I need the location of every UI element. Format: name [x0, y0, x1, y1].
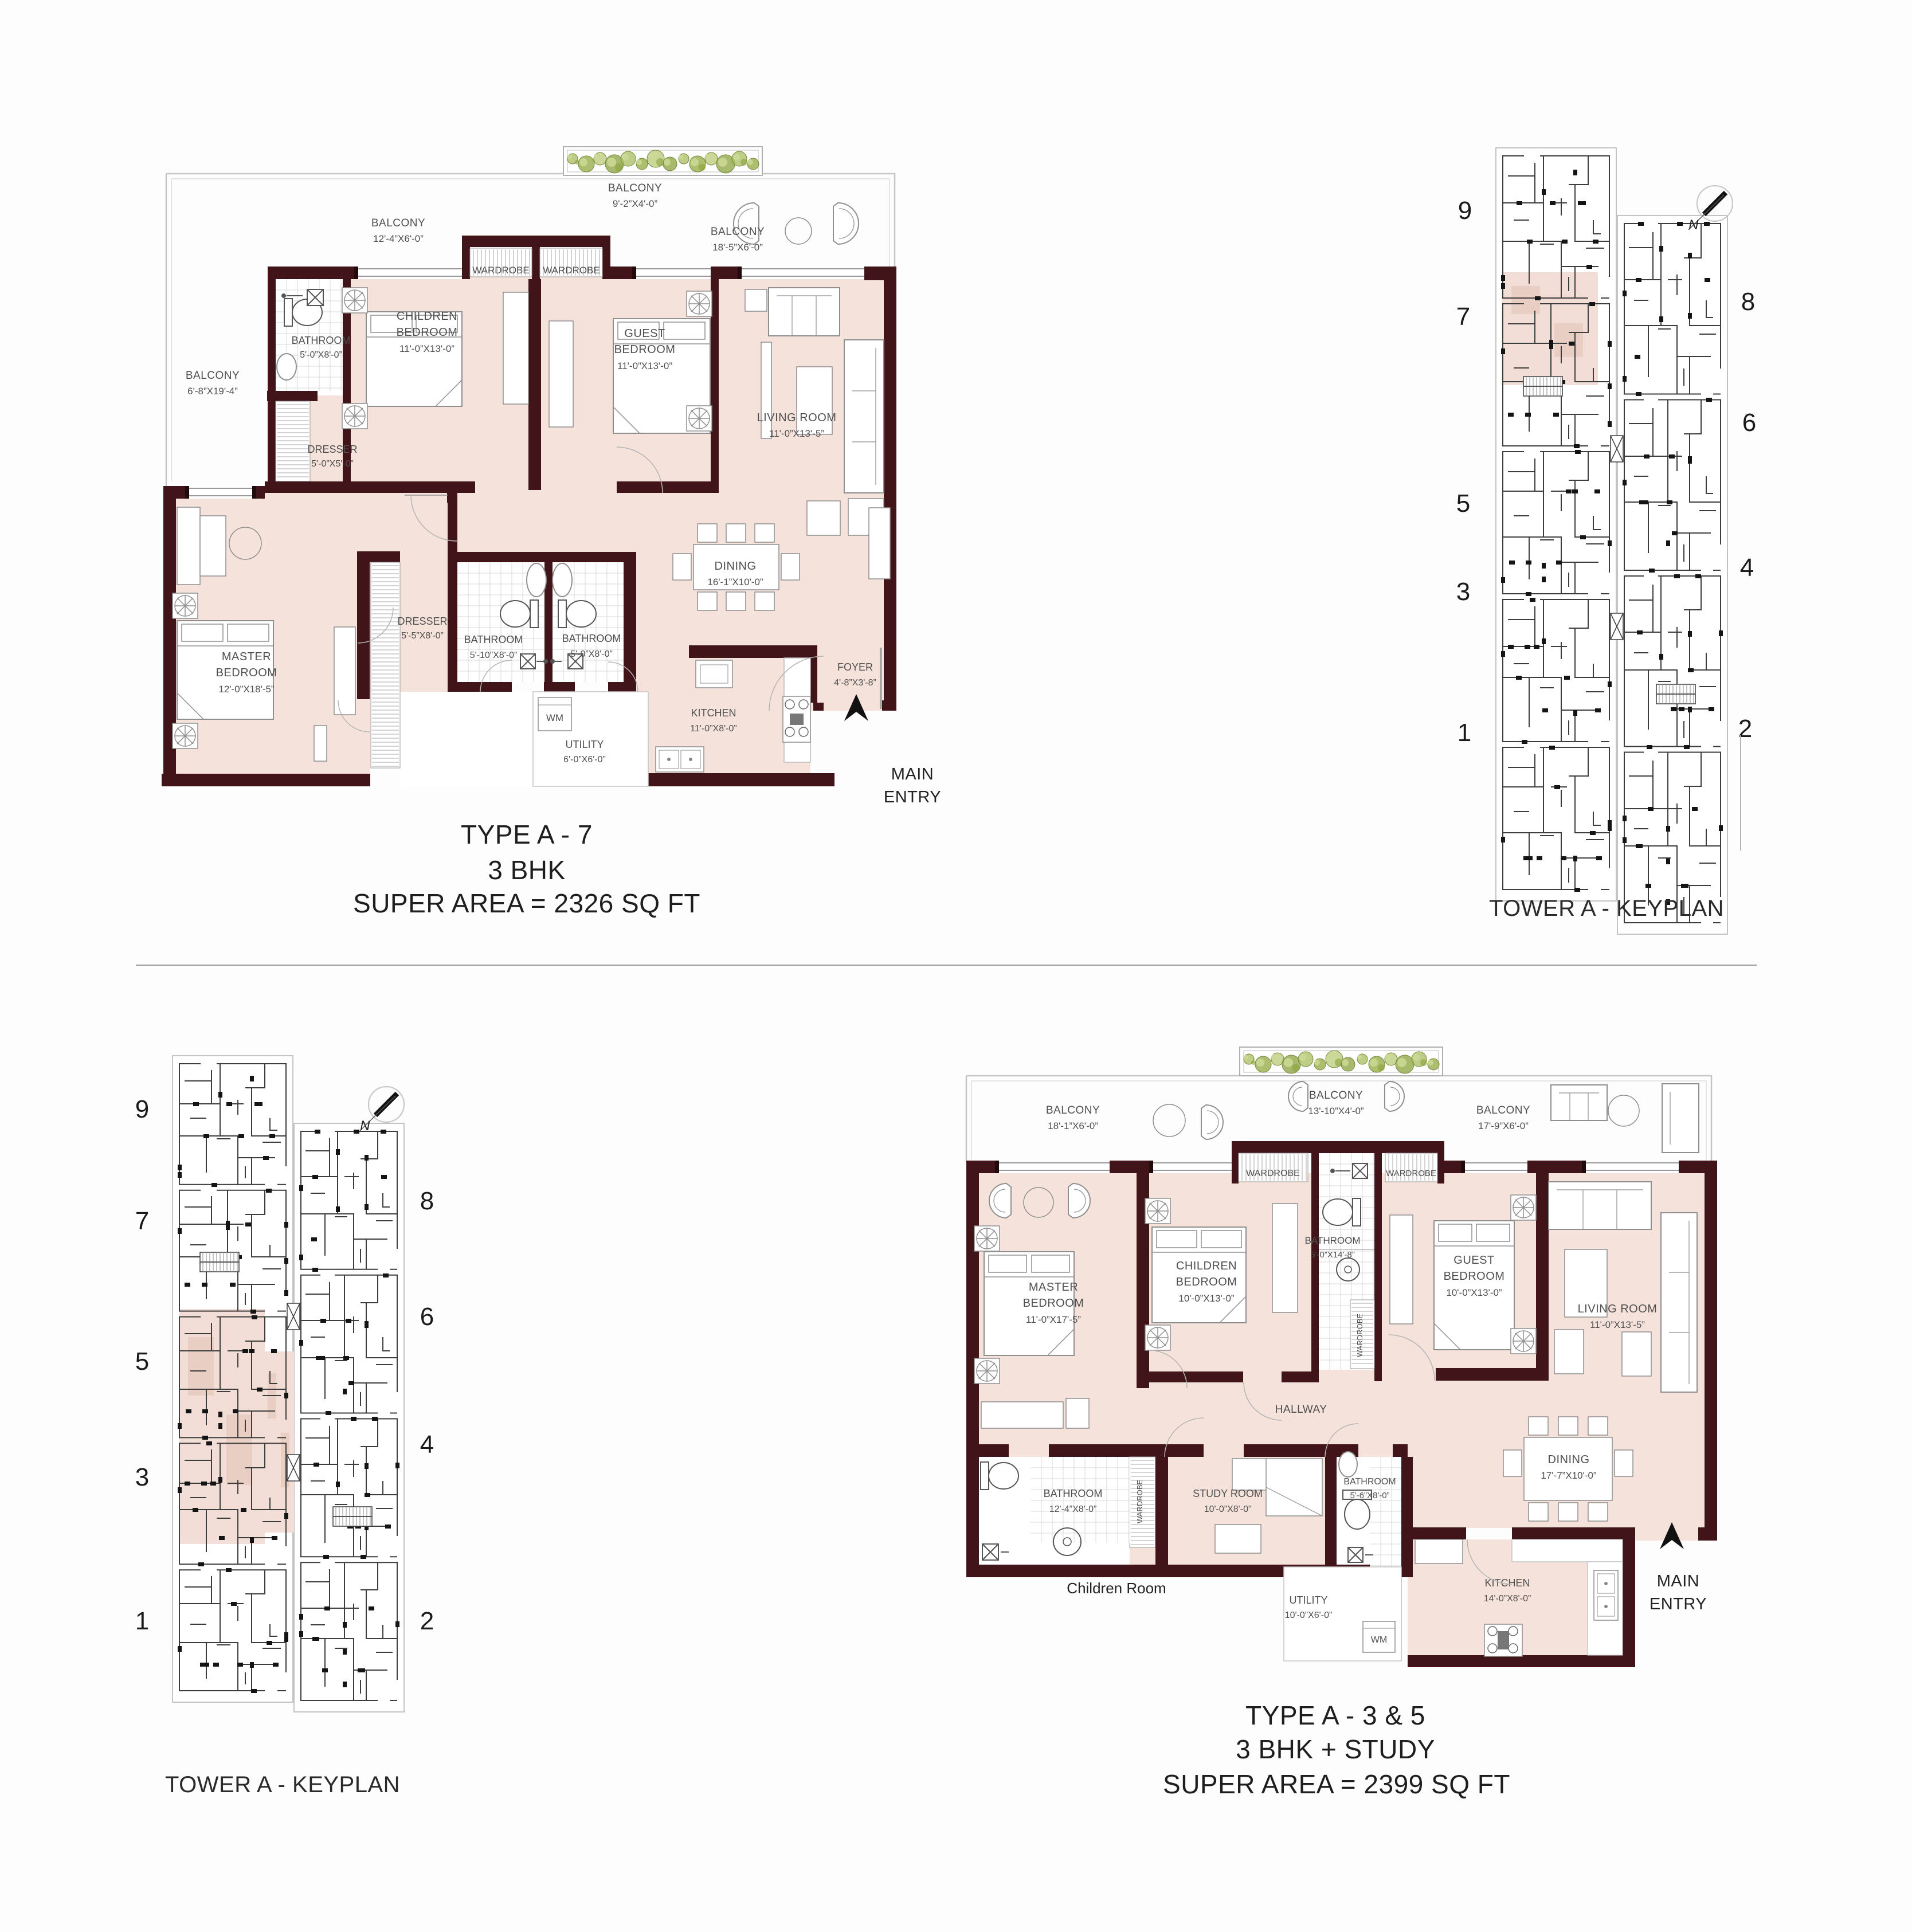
- svg-text:BATHROOM: BATHROOM: [464, 634, 523, 645]
- svg-text:3 BHK: 3 BHK: [488, 855, 565, 885]
- svg-text:5'-0”X5'-0”: 5'-0”X5'-0”: [311, 459, 354, 469]
- svg-text:5: 5: [1456, 489, 1470, 518]
- svg-text:CHILDREN: CHILDREN: [1176, 1260, 1237, 1272]
- svg-text:WARDROBE: WARDROBE: [1355, 1314, 1364, 1357]
- svg-text:1: 1: [135, 1607, 149, 1635]
- svg-text:BALCONY: BALCONY: [371, 217, 425, 229]
- svg-text:SUPER AREA = 2326 SQ FT: SUPER AREA = 2326 SQ FT: [353, 888, 700, 918]
- svg-text:BEDROOM: BEDROOM: [1176, 1276, 1237, 1288]
- svg-text:BATHROOM: BATHROOM: [1343, 1477, 1396, 1487]
- svg-text:BALCONY: BALCONY: [186, 370, 240, 382]
- svg-text:6'-8”X19'-4”: 6'-8”X19'-4”: [187, 386, 238, 397]
- svg-text:GUEST: GUEST: [1453, 1254, 1494, 1267]
- svg-text:CHILDREN: CHILDREN: [397, 310, 457, 323]
- svg-text:DINING: DINING: [1548, 1453, 1590, 1466]
- svg-text:UTILITY: UTILITY: [1289, 1594, 1327, 1606]
- svg-text:BALCONY: BALCONY: [608, 182, 662, 194]
- svg-text:12'-4”X8'-0”: 12'-4”X8'-0”: [1049, 1504, 1097, 1514]
- svg-text:BEDROOM: BEDROOM: [1023, 1297, 1084, 1310]
- svg-text:HALLWAY: HALLWAY: [1275, 1404, 1327, 1416]
- svg-text:STUDY ROOM: STUDY ROOM: [1193, 1488, 1263, 1499]
- svg-text:9'-2”X4'-0”: 9'-2”X4'-0”: [613, 198, 658, 209]
- svg-text:14'-0”X8'-0”: 14'-0”X8'-0”: [1484, 1594, 1531, 1604]
- svg-text:GUEST: GUEST: [624, 327, 665, 340]
- svg-text:BATHROOM: BATHROOM: [1044, 1488, 1103, 1499]
- svg-text:6: 6: [420, 1303, 434, 1331]
- svg-text:7: 7: [135, 1207, 149, 1235]
- svg-text:WM: WM: [546, 712, 563, 723]
- svg-text:1: 1: [1457, 719, 1471, 747]
- svg-text:4: 4: [1740, 554, 1754, 582]
- svg-text:5'-0”X14'-8”: 5'-0”X14'-8”: [1310, 1250, 1354, 1260]
- svg-text:18'-5”X6'-0”: 18'-5”X6'-0”: [712, 242, 763, 253]
- svg-text:ENTRY: ENTRY: [1650, 1595, 1707, 1613]
- svg-text:BALCONY: BALCONY: [711, 226, 765, 238]
- svg-text:17'-9”X6'-0”: 17'-9”X6'-0”: [1478, 1120, 1529, 1131]
- svg-text:5: 5: [135, 1347, 149, 1375]
- svg-text:9: 9: [135, 1095, 149, 1123]
- svg-text:TOWER A - KEYPLAN: TOWER A - KEYPLAN: [165, 1772, 400, 1797]
- svg-text:BEDROOM: BEDROOM: [1444, 1270, 1505, 1283]
- svg-text:8: 8: [1741, 288, 1755, 316]
- svg-text:DRESSER: DRESSER: [307, 444, 357, 455]
- svg-text:WARDROBE: WARDROBE: [1246, 1169, 1300, 1178]
- svg-text:4: 4: [420, 1431, 434, 1459]
- svg-text:ENTRY: ENTRY: [884, 788, 941, 806]
- svg-text:12'-4”X6'-0”: 12'-4”X6'-0”: [373, 233, 424, 244]
- svg-text:DINING: DINING: [715, 560, 757, 573]
- svg-text:5'-10”X8'-0”: 5'-10”X8'-0”: [470, 650, 518, 660]
- svg-text:MASTER: MASTER: [222, 650, 271, 663]
- svg-text:TOWER A - KEYPLAN: TOWER A - KEYPLAN: [1489, 896, 1724, 921]
- svg-text:N: N: [1688, 217, 1699, 233]
- svg-text:6'-0”X6'-0”: 6'-0”X6'-0”: [563, 755, 606, 765]
- svg-text:TYPE A - 3 & 5: TYPE A - 3 & 5: [1245, 1700, 1425, 1730]
- svg-text:10'-0”X8'-0”: 10'-0”X8'-0”: [1204, 1504, 1252, 1514]
- svg-text:BATHROOM: BATHROOM: [1305, 1235, 1361, 1246]
- svg-text:8: 8: [420, 1187, 434, 1215]
- svg-text:9: 9: [1458, 197, 1472, 225]
- svg-text:5'-0”X8'-0”: 5'-0”X8'-0”: [570, 649, 613, 659]
- svg-text:7: 7: [1456, 303, 1470, 331]
- svg-text:3: 3: [135, 1463, 149, 1491]
- svg-text:16'-1”X10'-0”: 16'-1”X10'-0”: [707, 577, 763, 587]
- svg-text:TYPE A - 7: TYPE A - 7: [461, 820, 593, 849]
- svg-text:BALCONY: BALCONY: [1476, 1104, 1530, 1116]
- svg-text:2: 2: [420, 1607, 434, 1635]
- svg-text:11'-0”X13'-0”: 11'-0”X13'-0”: [617, 360, 672, 371]
- svg-text:17'-7”X10'-0”: 17'-7”X10'-0”: [1541, 1470, 1597, 1481]
- svg-text:BALCONY: BALCONY: [1046, 1104, 1100, 1116]
- svg-text:10'-0”X6'-0”: 10'-0”X6'-0”: [1285, 1610, 1333, 1620]
- svg-text:KITCHEN: KITCHEN: [691, 707, 736, 719]
- svg-text:N: N: [360, 1118, 370, 1134]
- svg-text:WARDROBE: WARDROBE: [472, 265, 530, 276]
- svg-text:BEDROOM: BEDROOM: [216, 667, 277, 679]
- svg-text:BALCONY: BALCONY: [1309, 1090, 1363, 1102]
- svg-text:10'-0”X13'-0”: 10'-0”X13'-0”: [1446, 1287, 1502, 1298]
- svg-text:5'-6”X8'-0”: 5'-6”X8'-0”: [1350, 1491, 1389, 1500]
- svg-text:SUPER AREA = 2399 SQ FT: SUPER AREA = 2399 SQ FT: [1163, 1769, 1510, 1799]
- svg-text:MAIN: MAIN: [891, 765, 934, 783]
- svg-text:WARDROBE: WARDROBE: [1386, 1169, 1436, 1178]
- svg-text:5'-5”X8'-0”: 5'-5”X8'-0”: [401, 631, 444, 641]
- svg-text:4'-8”X3'-8”: 4'-8”X3'-8”: [834, 678, 876, 688]
- svg-text:UTILITY: UTILITY: [565, 739, 604, 750]
- svg-text:BATHROOM: BATHROOM: [562, 633, 621, 644]
- svg-text:WARDROBE: WARDROBE: [543, 265, 600, 276]
- svg-text:5'-0”X8'-0”: 5'-0”X8'-0”: [300, 350, 342, 360]
- svg-text:MASTER: MASTER: [1029, 1281, 1078, 1294]
- svg-text:3 BHK + STUDY: 3 BHK + STUDY: [1236, 1734, 1435, 1764]
- svg-text:MAIN: MAIN: [1657, 1572, 1700, 1590]
- svg-text:3: 3: [1456, 578, 1470, 606]
- svg-text:6: 6: [1742, 409, 1756, 437]
- svg-text:DRESSER: DRESSER: [397, 616, 447, 627]
- svg-text:10'-0”X13'-0”: 10'-0”X13'-0”: [1178, 1293, 1235, 1304]
- svg-text:11'-0”X8'-0”: 11'-0”X8'-0”: [690, 724, 736, 734]
- svg-text:18'-1”X6'-0”: 18'-1”X6'-0”: [1048, 1120, 1098, 1131]
- svg-text:11'-0”X13'-0”: 11'-0”X13'-0”: [399, 343, 455, 354]
- svg-text:LIVING ROOM: LIVING ROOM: [757, 412, 837, 424]
- svg-text:WM: WM: [1371, 1635, 1387, 1645]
- svg-text:WARDROBE: WARDROBE: [1135, 1480, 1144, 1523]
- svg-text:BATHROOM: BATHROOM: [292, 335, 351, 346]
- svg-text:13'-10”X4'-0”: 13'-10”X4'-0”: [1308, 1106, 1364, 1116]
- svg-text:LIVING ROOM: LIVING ROOM: [1578, 1303, 1658, 1315]
- svg-text:11'-0”X13'-5”: 11'-0”X13'-5”: [769, 428, 824, 439]
- svg-text:Children Room: Children Room: [1067, 1580, 1166, 1597]
- svg-text:12'-0”X18'-5”: 12'-0”X18'-5”: [218, 684, 275, 695]
- svg-text:11'-0”X13'-5”: 11'-0”X13'-5”: [1590, 1319, 1645, 1330]
- svg-text:11'-0”X17'-5”: 11'-0”X17'-5”: [1026, 1314, 1081, 1325]
- svg-text:FOYER: FOYER: [837, 661, 873, 673]
- svg-text:BEDROOM: BEDROOM: [397, 326, 458, 339]
- svg-text:BEDROOM: BEDROOM: [614, 343, 676, 356]
